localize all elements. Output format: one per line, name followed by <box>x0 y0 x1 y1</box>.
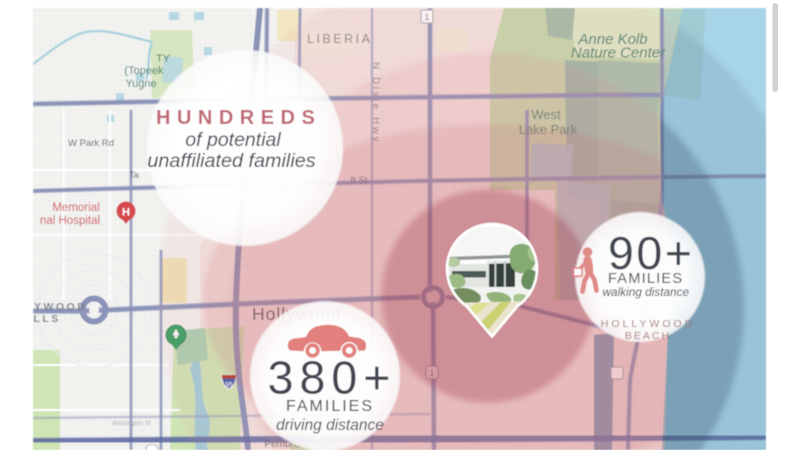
svg-text:(Topeek: (Topeek <box>124 65 164 77</box>
svg-text:LYWOOD: LYWOOD <box>26 301 87 313</box>
svg-text:of potential: of potential <box>185 129 281 151</box>
svg-text:Memorial: Memorial <box>52 202 99 214</box>
svg-text:FAMILIES: FAMILIES <box>286 398 374 415</box>
svg-text:HOLLYWOOD: HOLLYWOOD <box>601 318 695 330</box>
svg-text:W Park Rd: W Park Rd <box>68 138 114 149</box>
svg-text:unaffiliated families: unaffiliated families <box>147 150 315 172</box>
svg-text:walking distance: walking distance <box>603 285 690 299</box>
svg-text:H: H <box>122 207 130 219</box>
svg-text:TY: TY <box>156 53 171 65</box>
svg-text:driving distance: driving distance <box>276 417 384 434</box>
svg-text:Yugne: Yugne <box>125 78 156 90</box>
svg-text:Washington St: Washington St <box>112 421 151 427</box>
svg-text:BEACH: BEACH <box>625 330 671 342</box>
svg-text:Ta: Ta <box>129 170 139 180</box>
svg-text:nal Hospital: nal Hospital <box>40 215 100 227</box>
svg-text:380+: 380+ <box>268 352 397 404</box>
svg-text:HUNDREDS: HUNDREDS <box>156 107 321 129</box>
